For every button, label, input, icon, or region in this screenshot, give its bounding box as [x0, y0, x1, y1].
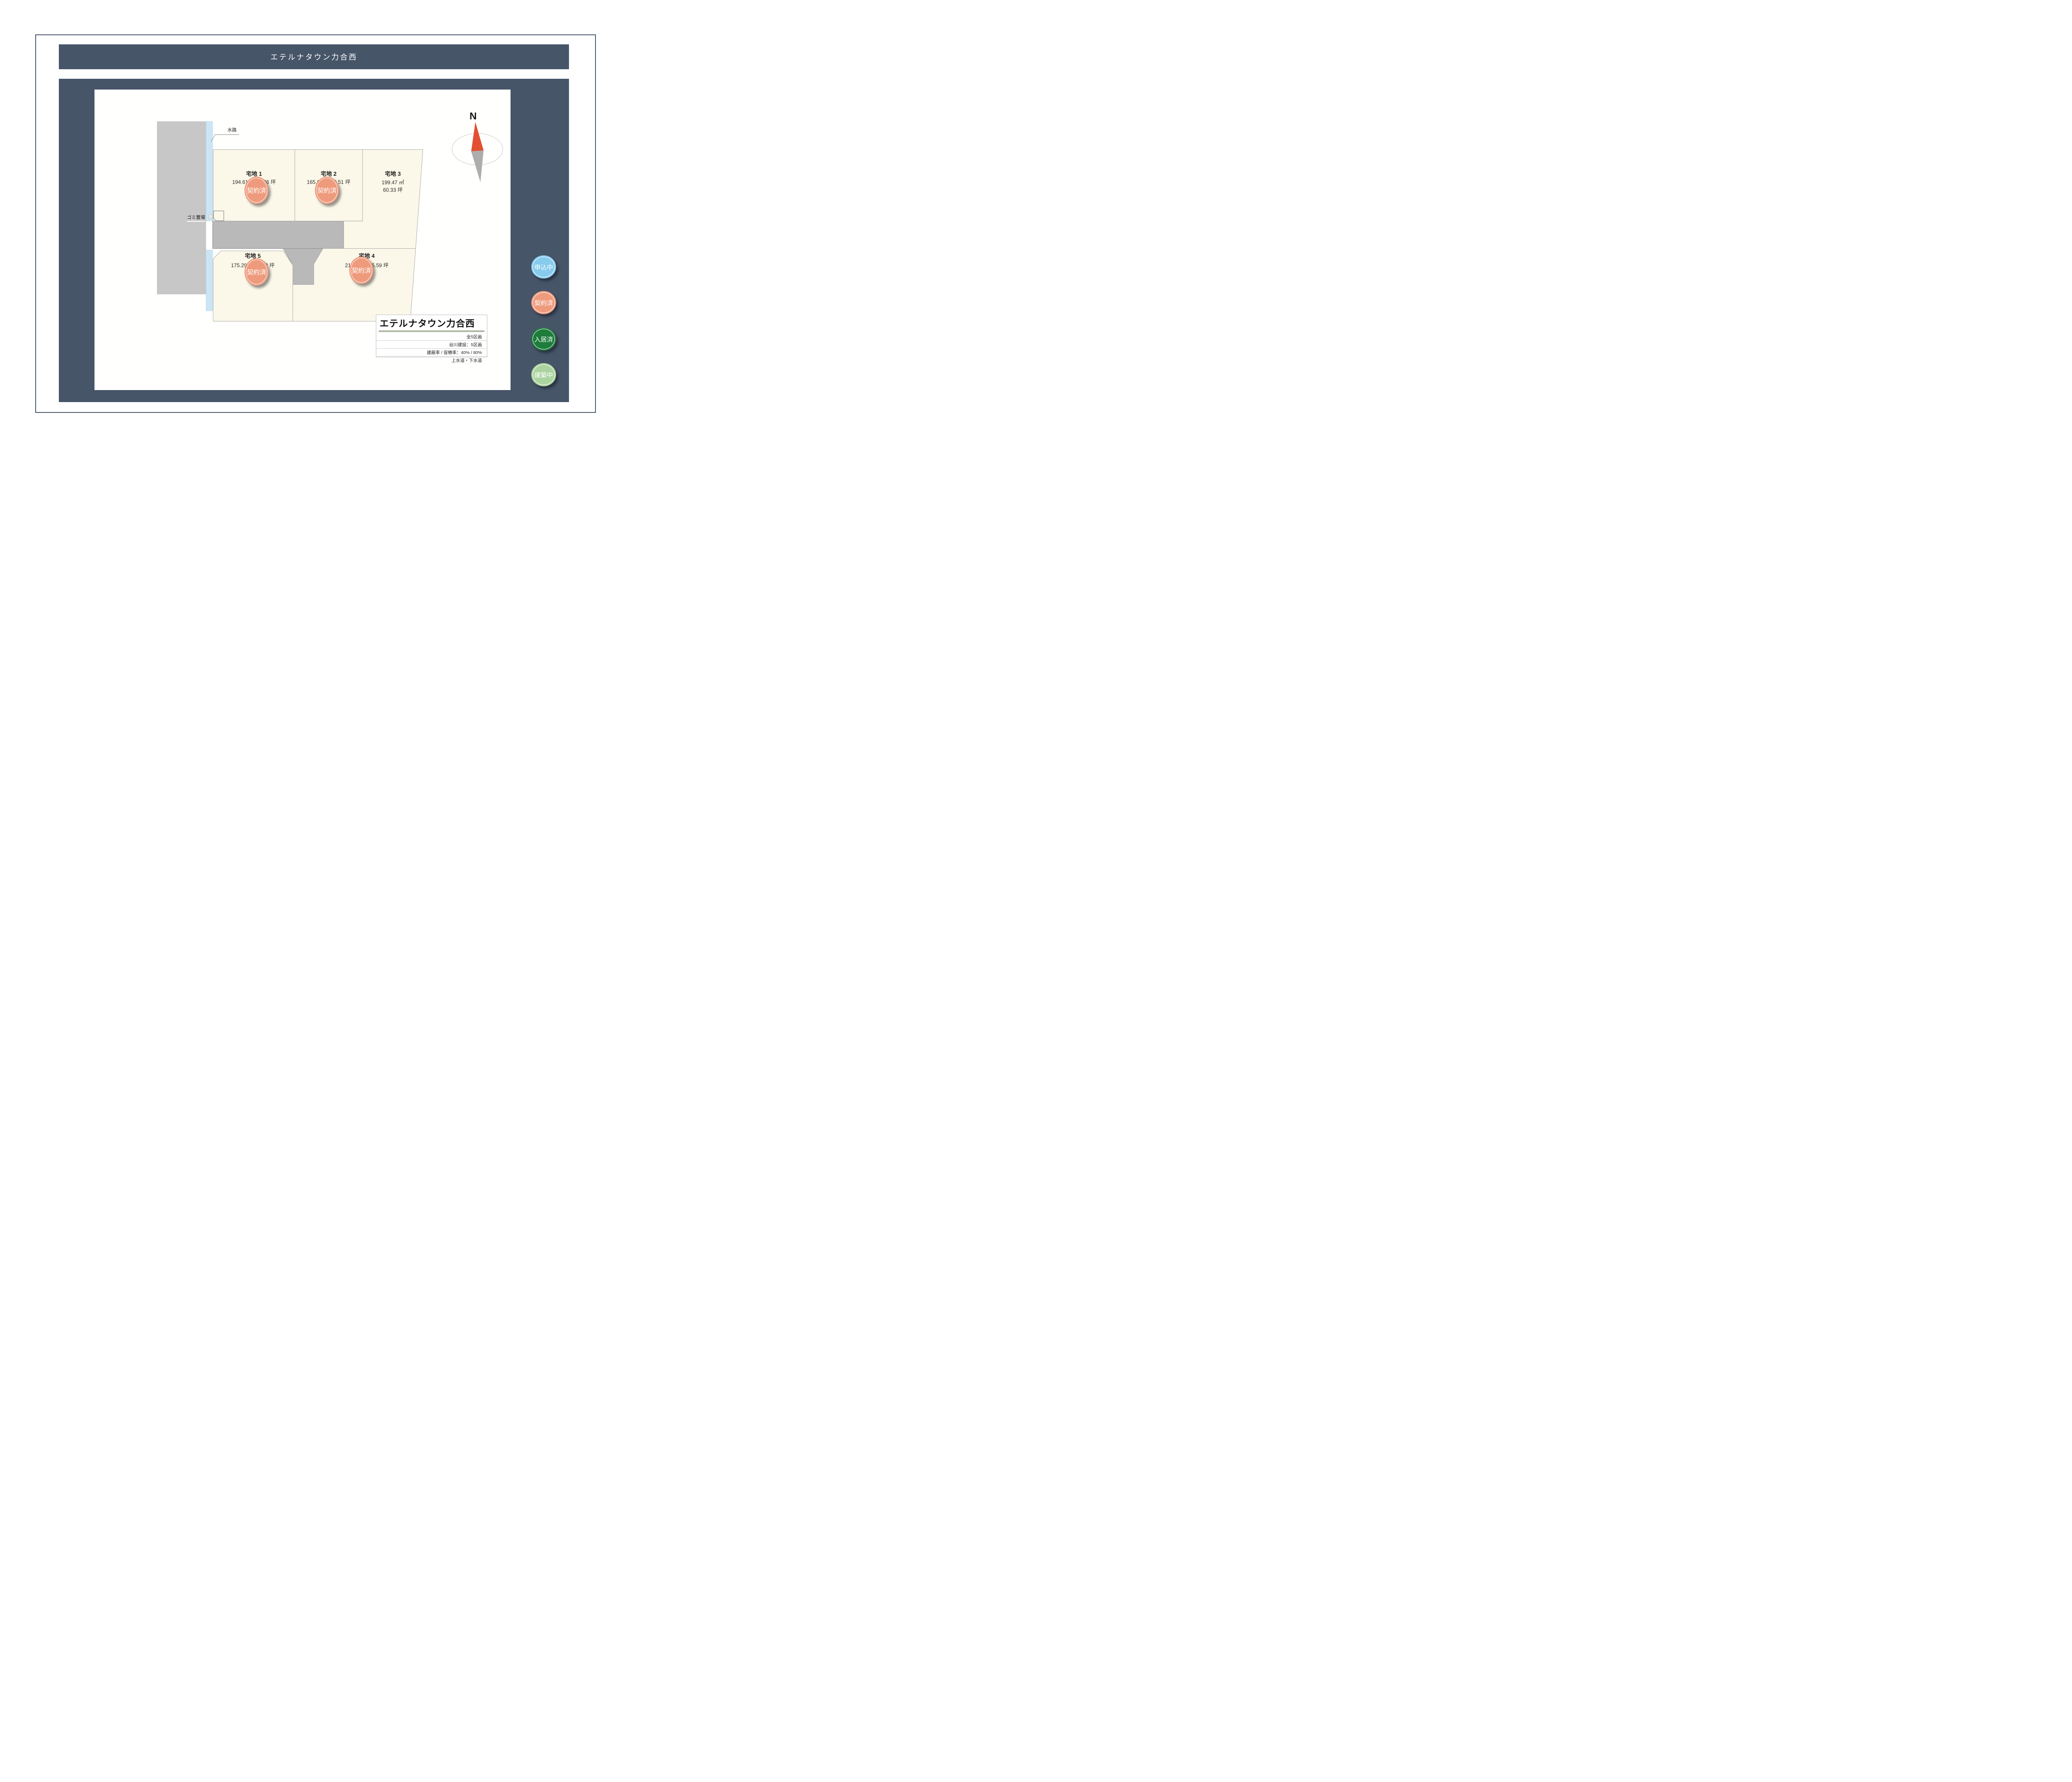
info-row-total-lots: 全5区画: [376, 333, 487, 340]
development-info-box: エテルナタウン力合西 全5区画 谷川建設：5区画 建蔽率 / 容積率：40% /…: [376, 315, 487, 357]
legend-badge-contracted: 契約済: [531, 291, 556, 314]
waterway-strip-lower: [206, 250, 213, 311]
info-row-coverage-ratio: 建蔽率 / 容積率：40% / 80%: [376, 348, 487, 356]
lot-1-name: 宅地 1: [246, 169, 262, 177]
outer-frame: エテルナタウン力合西: [35, 34, 596, 413]
garbage-arrow-icon: [209, 214, 213, 219]
compass-north-label: N: [470, 111, 477, 122]
lot-5-status-label: 契約済: [247, 267, 266, 276]
legend-badge-under-construction: 建築中: [531, 363, 556, 386]
road-main: [213, 221, 344, 248]
legend-badge-occupied: 入居済: [531, 327, 556, 351]
info-row-builder: 谷川建設：5区画: [376, 340, 487, 348]
waterway-strip-upper: [206, 121, 213, 221]
lot-3-name: 宅地 3: [385, 169, 401, 177]
info-row-utilities: 上水道・下水道: [376, 356, 487, 364]
lot-4-status-badge: 契約済: [349, 257, 373, 284]
page: エテルナタウン力合西: [0, 0, 630, 446]
lot-2-status-badge: 契約済: [315, 177, 339, 204]
adjacent-land-block: [157, 121, 206, 294]
compass-needle-south: [471, 150, 486, 183]
legend-label-applying: 申込中: [534, 263, 553, 272]
lot-5-status-badge: 契約済: [244, 258, 269, 286]
compass: N: [452, 111, 503, 183]
legend-badge-applying: 申込中: [531, 255, 556, 279]
legend-label-occupied: 入居済: [534, 335, 553, 344]
lot-2-name: 宅地 2: [321, 169, 336, 177]
lot-2-status-label: 契約済: [317, 186, 337, 195]
waterway-label: 水路: [228, 126, 237, 133]
legend-label-under-construction: 建築中: [534, 371, 553, 379]
garbage-station-label: ゴミ置場: [187, 214, 205, 222]
waterway-leader-line: [211, 135, 239, 142]
header-bar: エテルナタウン力合西: [59, 44, 569, 69]
site-map-panel: N 宅地 1 194.61 ㎡ 58.86 坪 契約済 宅地 2 165.69 …: [94, 90, 511, 390]
garbage-station-area: [213, 211, 224, 221]
lot-3-area-m2: 199.47 ㎡: [382, 178, 404, 186]
development-title: エテルナタウン力合西: [380, 316, 484, 330]
compass-needle-north: [469, 121, 484, 151]
lot-1-status-badge: 契約済: [244, 177, 269, 204]
lot-1-status-label: 契約済: [247, 186, 266, 195]
title-underline-bar: [379, 330, 484, 332]
lot-3-area-tsubo: 60.33 坪: [383, 186, 402, 194]
main-panel: N 宅地 1 194.61 ㎡ 58.86 坪 契約済 宅地 2 165.69 …: [59, 79, 569, 402]
page-title: エテルナタウン力合西: [271, 51, 358, 62]
legend-label-contracted: 契約済: [534, 298, 553, 307]
lot-4-status-label: 契約済: [352, 266, 371, 275]
